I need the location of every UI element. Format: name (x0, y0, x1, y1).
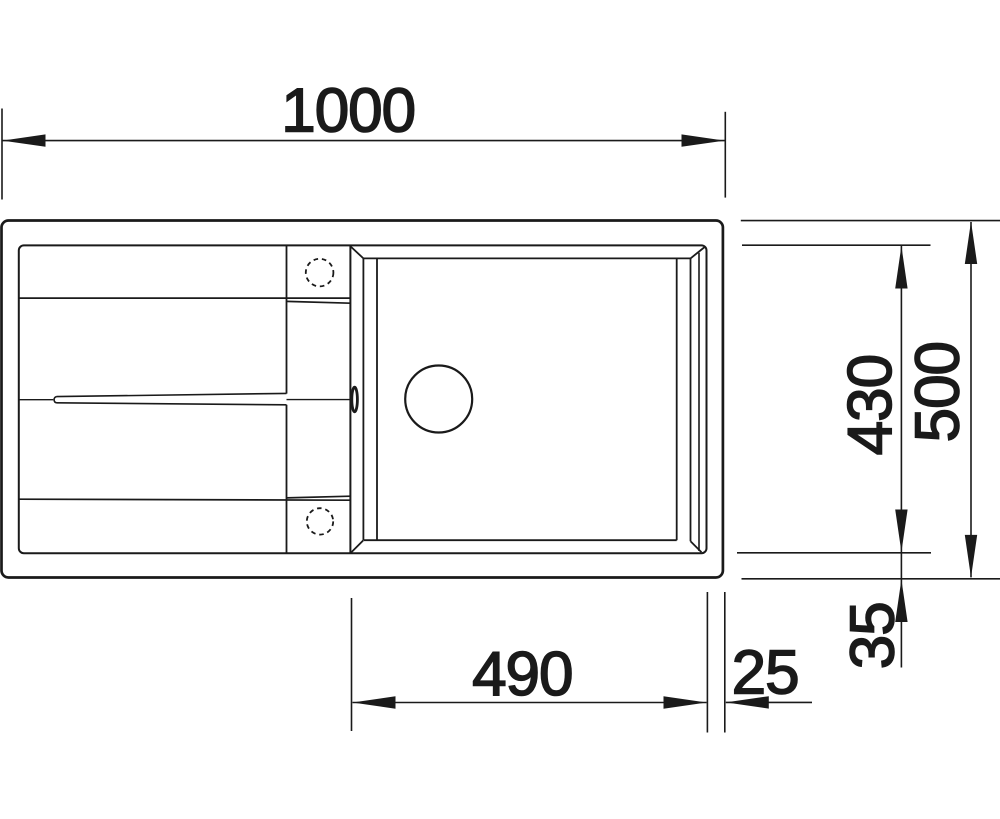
svg-text:500: 500 (904, 342, 973, 442)
svg-text:25: 25 (732, 638, 799, 707)
svg-text:430: 430 (836, 355, 905, 455)
svg-text:490: 490 (472, 640, 572, 709)
svg-text:1000: 1000 (281, 77, 415, 146)
svg-text:35: 35 (839, 602, 908, 669)
